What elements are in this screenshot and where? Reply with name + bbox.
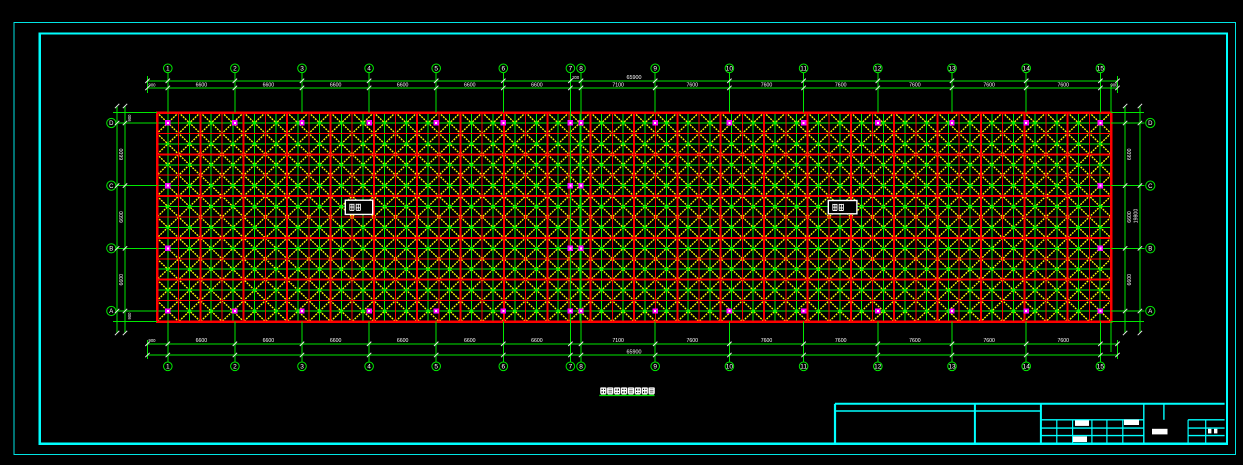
svg-text:7600: 7600	[761, 338, 773, 344]
svg-text:200: 200	[572, 75, 580, 80]
svg-text:65900: 65900	[627, 350, 642, 356]
svg-text:12: 12	[874, 66, 882, 73]
svg-text:4: 4	[367, 364, 371, 371]
svg-text:7600: 7600	[1058, 338, 1070, 344]
svg-text:14: 14	[1023, 66, 1031, 73]
svg-text:7600: 7600	[909, 82, 921, 88]
svg-text:6600: 6600	[464, 338, 476, 344]
svg-text:5: 5	[434, 364, 438, 371]
svg-text:900: 900	[149, 82, 157, 87]
svg-text:7: 7	[569, 66, 573, 73]
svg-text:A: A	[1148, 309, 1152, 315]
svg-text:3: 3	[300, 364, 304, 371]
svg-text:7600: 7600	[983, 82, 995, 88]
svg-text:6600: 6600	[531, 338, 543, 344]
svg-text:900: 900	[127, 114, 132, 122]
svg-text:10: 10	[726, 66, 734, 73]
svg-text:7600: 7600	[909, 338, 921, 344]
svg-text:6600: 6600	[196, 82, 208, 88]
svg-text:D: D	[1148, 121, 1153, 127]
svg-text:13: 13	[948, 364, 956, 371]
svg-text:7600: 7600	[687, 82, 699, 88]
svg-text:8: 8	[579, 364, 583, 371]
svg-text:6600: 6600	[119, 211, 125, 223]
svg-text:6600: 6600	[119, 148, 125, 160]
svg-text:6600: 6600	[397, 338, 409, 344]
svg-text:6600: 6600	[1127, 211, 1133, 223]
svg-text:7600: 7600	[983, 338, 995, 344]
svg-text:7100: 7100	[612, 82, 624, 88]
svg-text:65900: 65900	[627, 75, 642, 81]
svg-text:6600: 6600	[196, 338, 208, 344]
svg-text:6600: 6600	[531, 82, 543, 88]
svg-text:900: 900	[1111, 82, 1119, 87]
svg-text:6600: 6600	[397, 82, 409, 88]
svg-text:7100: 7100	[612, 338, 624, 344]
svg-text:7600: 7600	[1058, 82, 1070, 88]
svg-text:6600: 6600	[1127, 274, 1133, 286]
svg-text:7600: 7600	[761, 82, 773, 88]
svg-text:6600: 6600	[330, 82, 342, 88]
svg-text:6600: 6600	[263, 82, 275, 88]
svg-text:11: 11	[800, 364, 807, 371]
svg-text:15: 15	[1097, 364, 1105, 371]
svg-text:9: 9	[653, 66, 657, 73]
svg-text:10: 10	[726, 364, 734, 371]
svg-text:900: 900	[127, 312, 132, 320]
svg-text:C: C	[109, 184, 114, 190]
svg-text:8: 8	[579, 66, 583, 73]
svg-text:11: 11	[800, 66, 807, 73]
svg-text:C: C	[1148, 184, 1153, 190]
svg-text:900: 900	[149, 338, 157, 343]
svg-text:A: A	[109, 309, 113, 315]
svg-text:7600: 7600	[687, 338, 699, 344]
svg-text:13: 13	[948, 66, 956, 73]
svg-text:6: 6	[501, 364, 505, 371]
svg-text:6600: 6600	[1127, 148, 1133, 160]
svg-text:19800: 19800	[1134, 209, 1140, 224]
svg-text:6600: 6600	[263, 338, 275, 344]
svg-text:B: B	[1148, 247, 1152, 253]
svg-text:7600: 7600	[835, 82, 847, 88]
svg-text:6600: 6600	[119, 274, 125, 286]
svg-text:6: 6	[501, 66, 505, 73]
svg-text:2: 2	[233, 66, 237, 73]
svg-text:B: B	[109, 247, 113, 253]
svg-text:15: 15	[1097, 66, 1105, 73]
svg-text:12: 12	[874, 364, 882, 371]
svg-text:6600: 6600	[464, 82, 476, 88]
svg-text:1: 1	[166, 364, 170, 371]
svg-text:2: 2	[233, 364, 237, 371]
svg-text:9: 9	[653, 364, 657, 371]
svg-text:1: 1	[166, 66, 170, 73]
svg-text:3: 3	[300, 66, 304, 73]
svg-text:7600: 7600	[835, 338, 847, 344]
svg-text:5: 5	[434, 66, 438, 73]
svg-text:6600: 6600	[330, 338, 342, 344]
svg-text:14: 14	[1023, 364, 1031, 371]
svg-text:D: D	[109, 121, 114, 127]
svg-text:7: 7	[569, 364, 573, 371]
svg-text:4: 4	[367, 66, 371, 73]
